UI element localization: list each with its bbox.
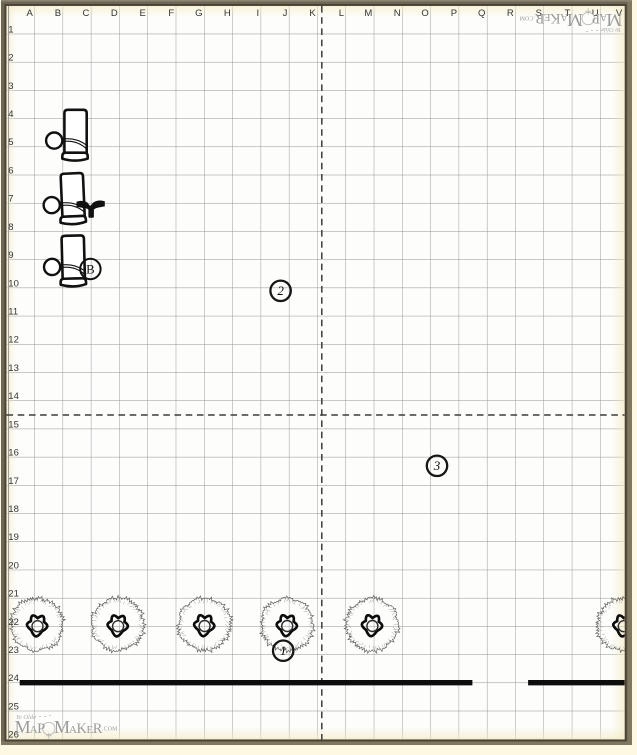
svg-text:10: 10 [8, 278, 19, 289]
svg-text:K: K [309, 8, 316, 19]
svg-text:21: 21 [8, 589, 19, 600]
svg-text:L: L [339, 8, 344, 19]
svg-text:2: 2 [8, 53, 13, 64]
svg-text:E: E [140, 8, 146, 19]
svg-text:D: D [111, 8, 118, 19]
svg-text:3: 3 [8, 81, 13, 92]
svg-text:14: 14 [8, 391, 19, 402]
svg-text:6: 6 [8, 166, 13, 177]
svg-text:O: O [421, 8, 428, 19]
svg-text:18: 18 [8, 504, 19, 515]
svg-text:1: 1 [8, 24, 13, 35]
svg-text:4: 4 [8, 109, 13, 120]
svg-text:20: 20 [8, 560, 19, 571]
svg-text:M: M [364, 8, 372, 19]
svg-text:15: 15 [8, 419, 19, 430]
svg-text:11: 11 [8, 307, 18, 318]
svg-text:7: 7 [8, 194, 13, 205]
svg-text:17: 17 [8, 476, 19, 487]
svg-text:P: P [451, 8, 457, 19]
svg-text:5: 5 [8, 137, 13, 148]
svg-text:R: R [507, 8, 514, 19]
svg-text:16: 16 [8, 448, 19, 459]
svg-text:19: 19 [8, 532, 19, 543]
svg-text:B: B [55, 8, 61, 19]
svg-text:G: G [195, 8, 202, 19]
svg-text:23: 23 [8, 645, 19, 656]
svg-text:25: 25 [8, 702, 19, 713]
svg-text:9: 9 [8, 250, 13, 261]
svg-text:F: F [168, 8, 174, 19]
svg-text:N: N [394, 8, 401, 19]
svg-text:24: 24 [8, 673, 19, 684]
svg-text:H: H [224, 8, 231, 19]
svg-text:A: A [26, 8, 33, 19]
svg-text:I: I [256, 8, 259, 19]
svg-text:2: 2 [277, 283, 284, 298]
svg-text:13: 13 [8, 363, 19, 374]
svg-text:8: 8 [8, 222, 13, 233]
svg-text:Q: Q [478, 8, 485, 19]
svg-text:1: 1 [280, 643, 287, 658]
svg-text:C: C [83, 8, 90, 19]
svg-text:B: B [86, 262, 95, 276]
svg-text:12: 12 [8, 335, 19, 346]
svg-text:J: J [283, 8, 288, 19]
svg-text:3: 3 [433, 458, 441, 473]
